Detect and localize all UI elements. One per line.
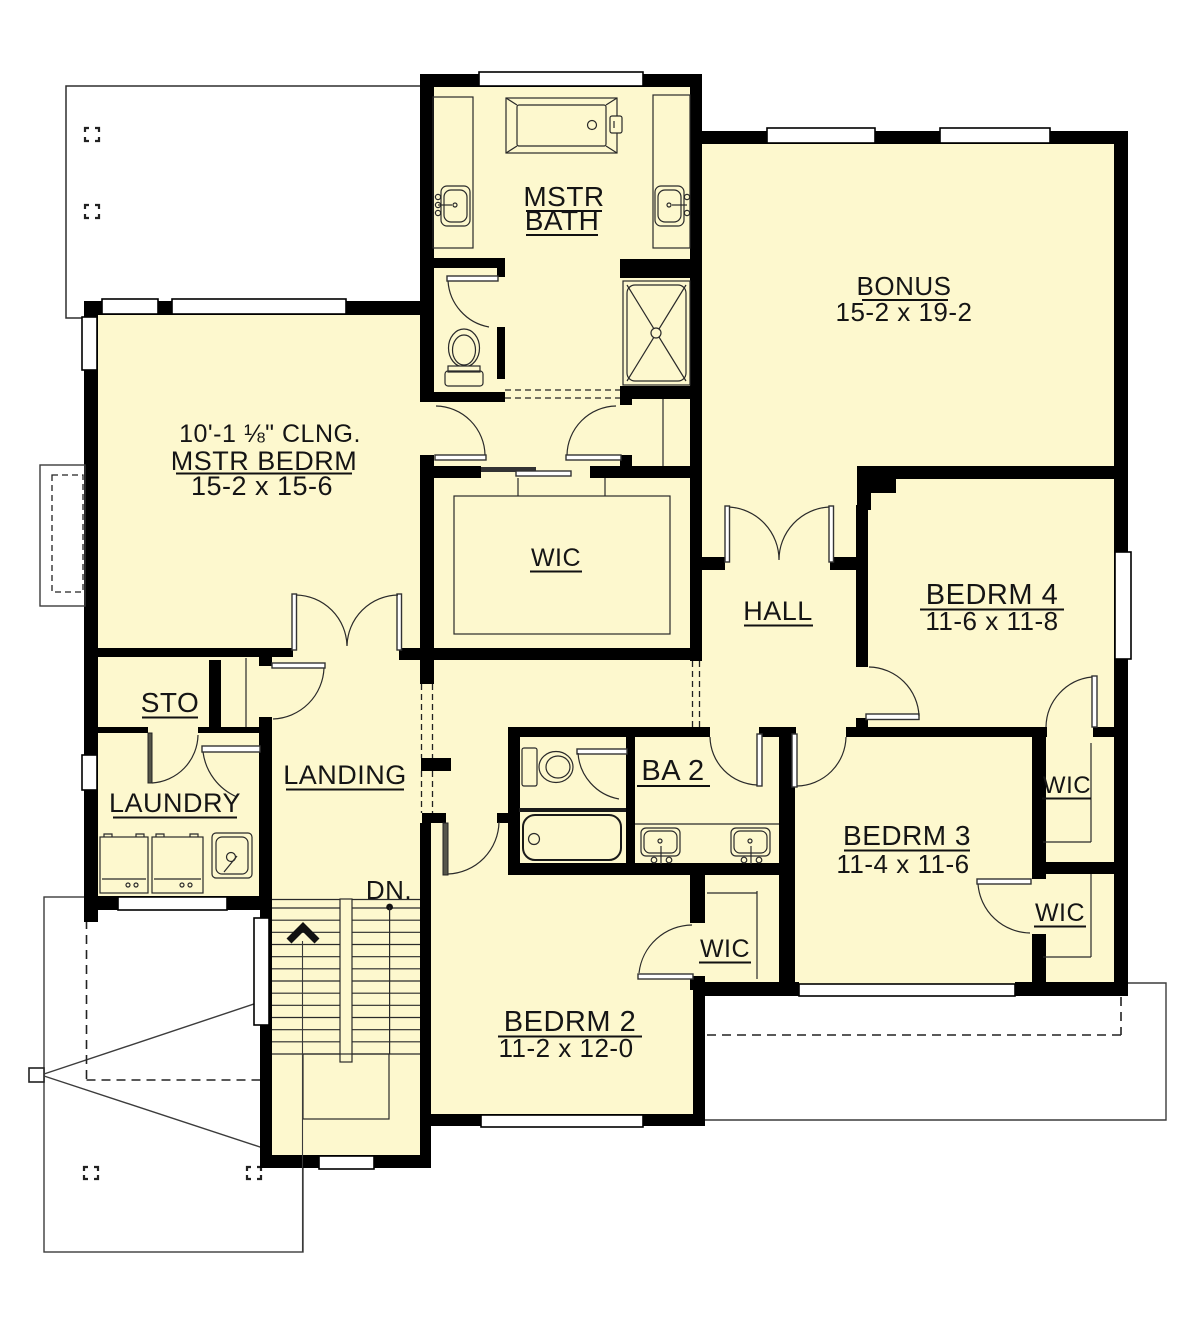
- svg-text:WIC: WIC: [1043, 772, 1091, 799]
- svg-text:WIC: WIC: [700, 935, 750, 963]
- svg-text:LANDING: LANDING: [283, 760, 407, 790]
- svg-text:WIC: WIC: [1035, 899, 1085, 927]
- svg-text:WIC: WIC: [531, 544, 581, 572]
- svg-text:BATH: BATH: [525, 205, 600, 236]
- svg-text:15-2 x 15-6: 15-2 x 15-6: [191, 471, 333, 501]
- svg-text:HALL: HALL: [743, 596, 813, 626]
- svg-text:LAUNDRY: LAUNDRY: [109, 788, 241, 818]
- svg-text:BEDRM 3: BEDRM 3: [843, 820, 971, 851]
- svg-text:10'-1 ⅛" CLNG.: 10'-1 ⅛" CLNG.: [179, 420, 361, 448]
- svg-text:DN.: DN.: [366, 875, 412, 905]
- svg-text:15-2 x 19-2: 15-2 x 19-2: [835, 297, 972, 327]
- svg-text:11-2 x 12-0: 11-2 x 12-0: [498, 1033, 633, 1063]
- svg-text:STO: STO: [141, 687, 200, 718]
- svg-text:BA 2: BA 2: [641, 755, 704, 787]
- svg-text:11-4 x 11-6: 11-4 x 11-6: [836, 849, 969, 879]
- svg-text:11-6 x 11-8: 11-6 x 11-8: [925, 606, 1058, 636]
